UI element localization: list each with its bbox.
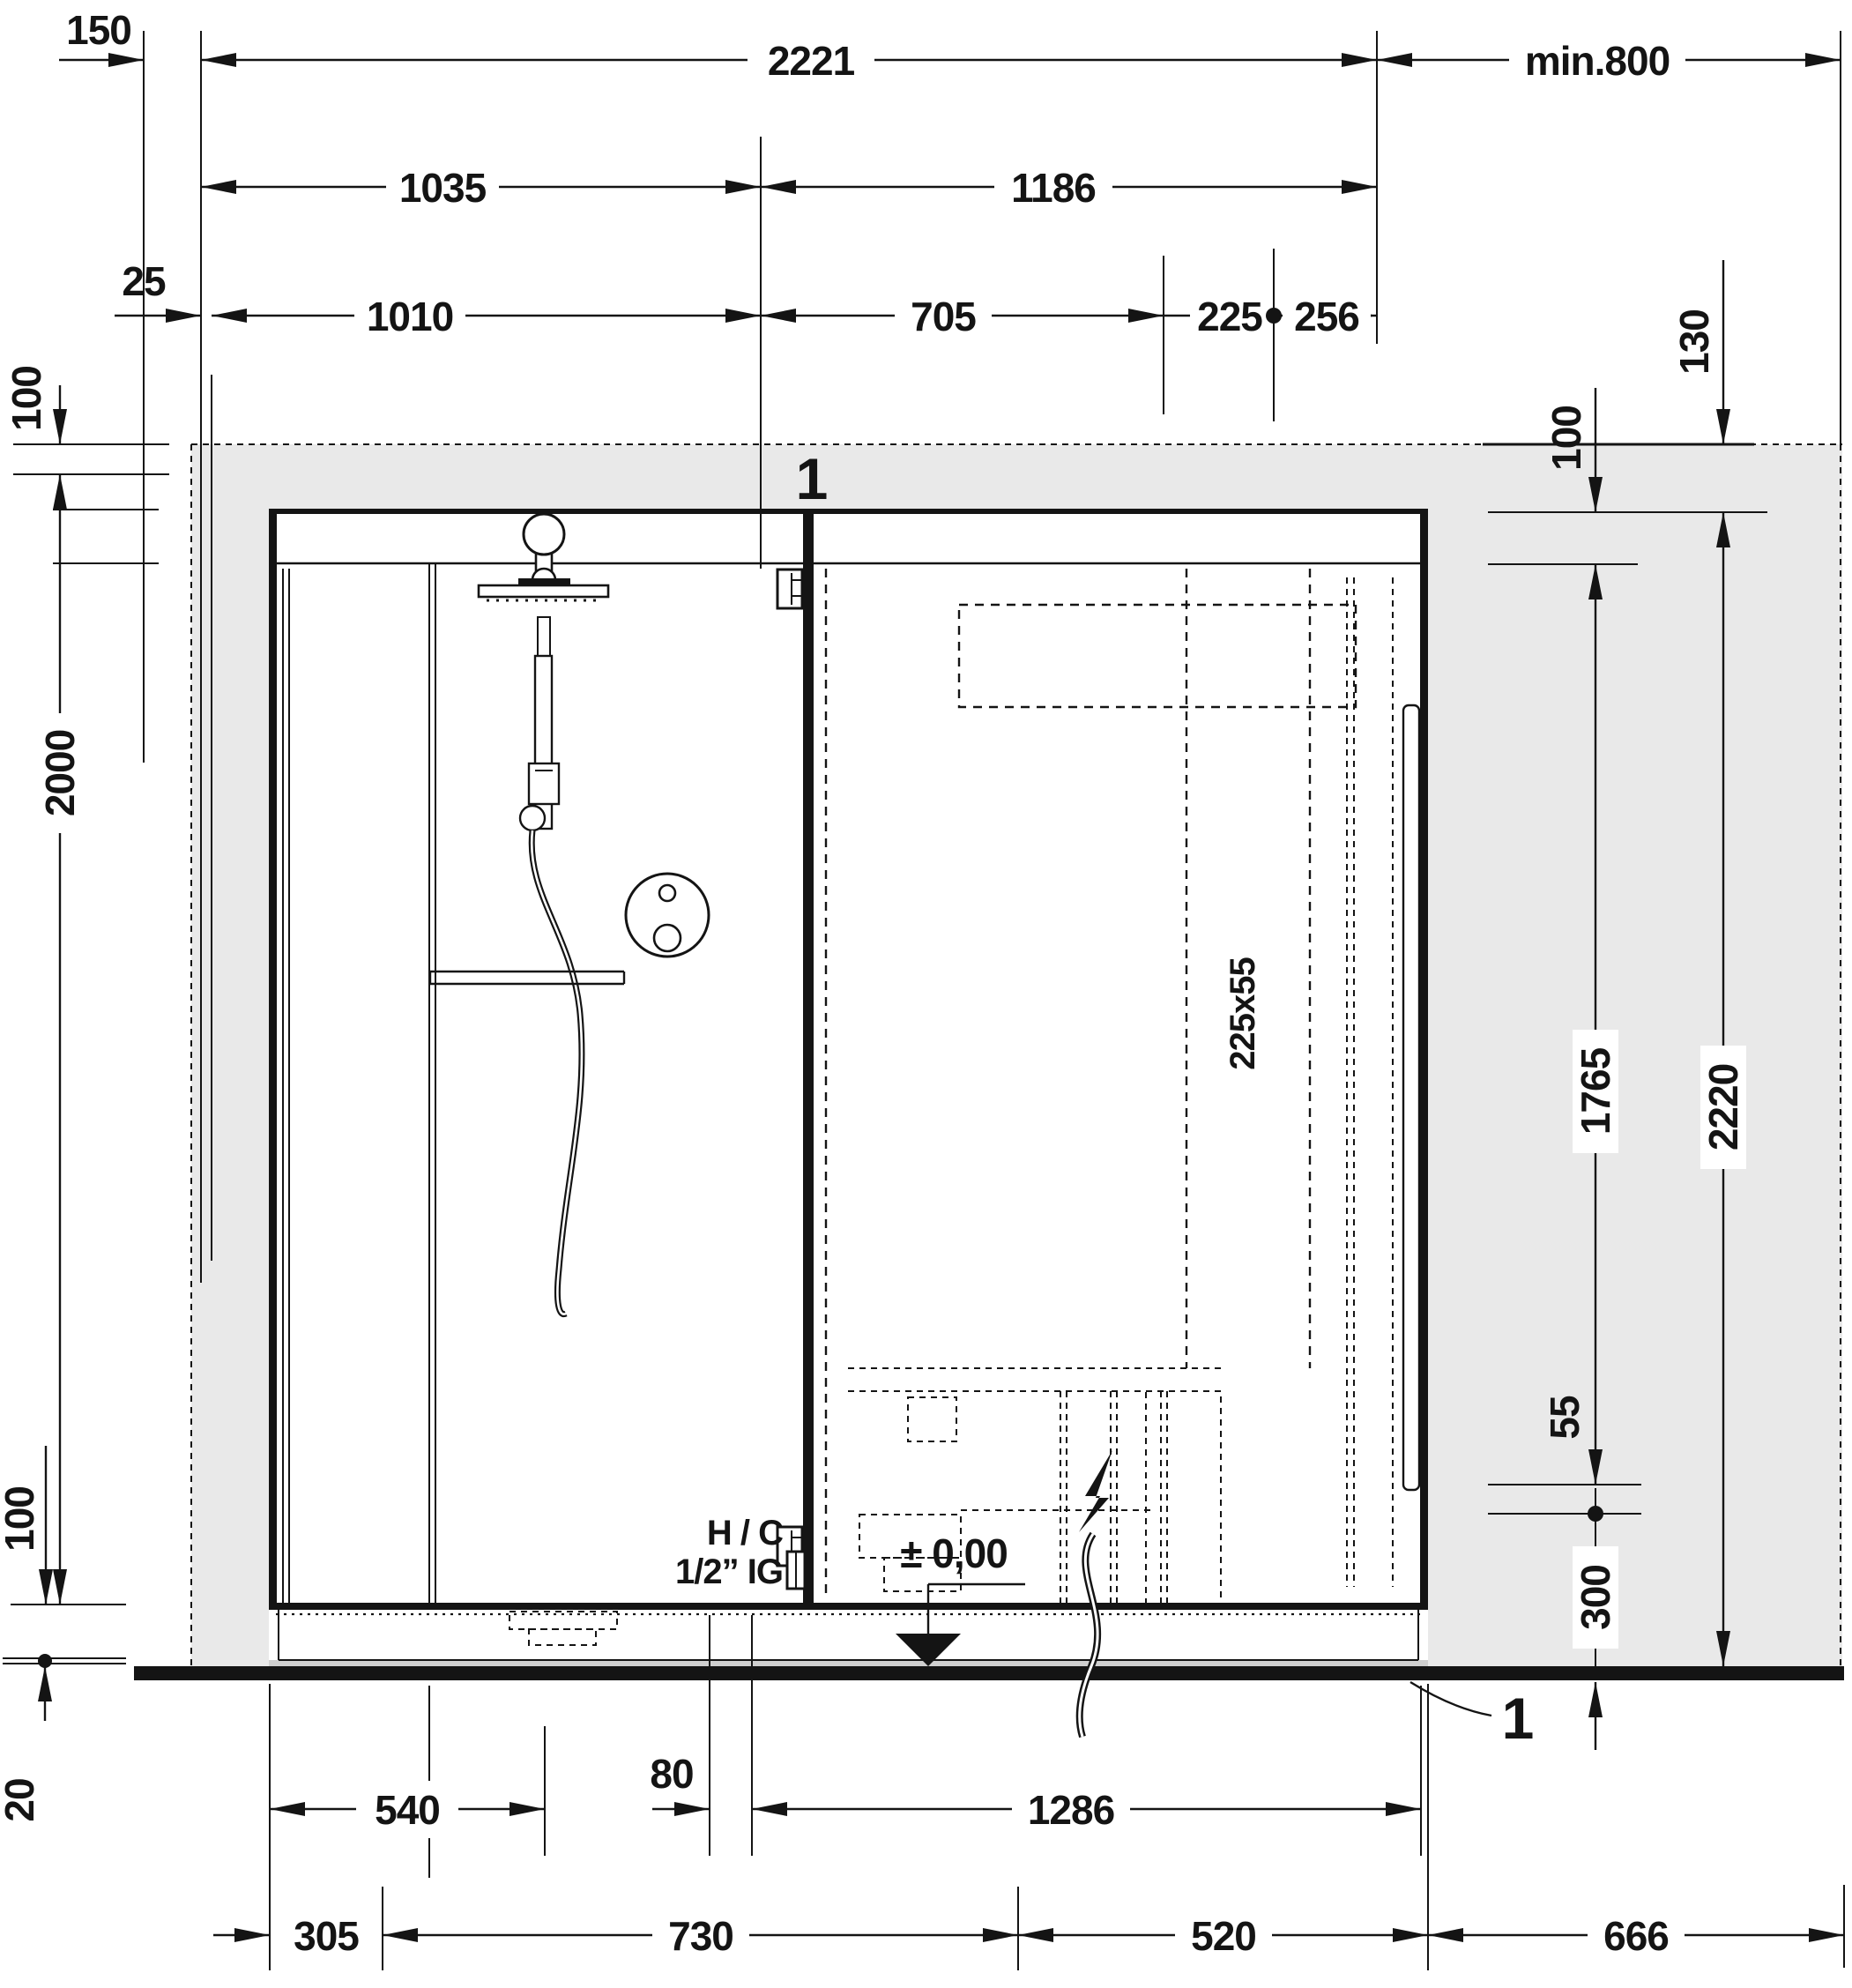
dim-2221-label: 2221 bbox=[768, 38, 855, 84]
level-marker-icon: ± 0,00 bbox=[896, 1530, 1025, 1666]
dim-right-130: 130 bbox=[1671, 260, 1723, 444]
dim-20-label: 20 bbox=[0, 1778, 42, 1821]
dim-2000-label: 2000 bbox=[37, 730, 83, 816]
cabin-left-wall bbox=[269, 510, 277, 1610]
wall-column-bar bbox=[1403, 705, 1419, 1490]
dim-drain-540: 540 bbox=[270, 1786, 545, 1833]
dim-connection-gap-80: 80 bbox=[650, 1751, 710, 1809]
duct-size-text: 225x55 bbox=[1224, 957, 1262, 1070]
drain-outline bbox=[509, 1612, 617, 1645]
dim-seg-730: 730 bbox=[383, 1912, 1018, 1959]
floor-sliver bbox=[269, 1660, 1428, 1666]
dim-seg-666: 666 bbox=[1428, 1912, 1844, 1959]
dim-wall-left-150: 150 bbox=[59, 7, 144, 60]
cabin-frame bbox=[269, 510, 1428, 1660]
dim-gap-25: 25 bbox=[115, 258, 201, 316]
dim-connection-705: 705 bbox=[761, 293, 1164, 339]
dim-520-label: 520 bbox=[1191, 1913, 1256, 1959]
dim-floor-gap-20: 20 bbox=[0, 1654, 52, 1822]
dim-clearance-min800: min.800 bbox=[1377, 37, 1841, 84]
dim-left-100-bottom-label: 100 bbox=[0, 1486, 42, 1552]
dim-right-100-label: 100 bbox=[1543, 406, 1589, 471]
dim-1010-label: 1010 bbox=[367, 294, 453, 339]
floor-slab bbox=[134, 1666, 1844, 1680]
dim-left-100-top: 100 bbox=[4, 366, 60, 444]
dim-55-label: 55 bbox=[1542, 1396, 1588, 1440]
dim-150-label: 150 bbox=[66, 7, 131, 53]
center-divider bbox=[803, 510, 814, 1610]
dim-256-label: 256 bbox=[1294, 294, 1359, 339]
dim-left-100-top-label: 100 bbox=[4, 366, 49, 431]
dim-225-label: 225 bbox=[1197, 294, 1262, 339]
dim-seg-520: 520 bbox=[1018, 1912, 1428, 1959]
level-text: ± 0,00 bbox=[900, 1530, 1008, 1576]
dim-overall-width-2221: 2221 bbox=[201, 37, 1377, 84]
shower-shelf bbox=[430, 972, 624, 984]
dim-1186-label: 1186 bbox=[1011, 165, 1096, 211]
top-frame-band bbox=[269, 510, 1428, 563]
dim-shower-width-1035: 1035 bbox=[201, 164, 761, 211]
gap-point-dot bbox=[38, 1654, 52, 1668]
dim-connection-1010: 1010 bbox=[212, 293, 761, 339]
dim-1035-label: 1035 bbox=[399, 165, 487, 211]
dim-540-label: 540 bbox=[375, 1787, 440, 1833]
dim-1765-label: 1765 bbox=[1573, 1047, 1618, 1135]
shower-slide-bar bbox=[529, 617, 559, 829]
door-hinge-top bbox=[777, 570, 802, 608]
technical-drawing-page: 225x55 ± 0,00 H / C 1/2” IG 1 1 bbox=[0, 0, 1852, 1988]
dim-666-label: 666 bbox=[1603, 1913, 1669, 1959]
dim-glass-height-2000: 2000 bbox=[37, 474, 83, 1605]
installation-diagram: 225x55 ± 0,00 H / C 1/2” IG 1 1 bbox=[0, 0, 1852, 1988]
dim-130-label: 130 bbox=[1671, 309, 1717, 375]
section-marker-bottom-text: 1 bbox=[1502, 1686, 1535, 1751]
dim-left-100-bottom: 100 bbox=[0, 1446, 46, 1605]
section-marker-bottom: 1 bbox=[1410, 1682, 1534, 1751]
dim-duct-256: 256 bbox=[1274, 294, 1377, 339]
dim-1286-label: 1286 bbox=[1028, 1787, 1114, 1833]
dim-duct-225: 225 bbox=[1164, 294, 1282, 339]
hand-shower-icon bbox=[520, 806, 582, 1314]
sauna-interior: 225x55 bbox=[848, 569, 1419, 1606]
dim-300-label: 300 bbox=[1573, 1565, 1618, 1630]
dim-705-label: 705 bbox=[911, 294, 976, 339]
dim-seg-305: 305 bbox=[213, 1913, 359, 1959]
dim-25-label: 25 bbox=[122, 258, 166, 304]
right-wall-paneling bbox=[1347, 577, 1419, 1587]
dim-305-label: 305 bbox=[294, 1913, 359, 1959]
dim-min800-label: min.800 bbox=[1525, 38, 1670, 84]
section-marker-top: 1 bbox=[796, 446, 829, 511]
dim-2220-label: 2220 bbox=[1700, 1064, 1746, 1150]
lightning-bolt-icon bbox=[1079, 1450, 1112, 1532]
dim-730-label: 730 bbox=[668, 1913, 733, 1959]
dim-80-label: 80 bbox=[650, 1751, 693, 1797]
cabin-right-wall bbox=[1420, 510, 1428, 1610]
power-cable bbox=[1080, 1534, 1097, 1737]
dim-sauna-base-1286: 1286 bbox=[752, 1786, 1421, 1833]
socket-point-dot bbox=[1588, 1506, 1603, 1522]
mixer-valve-icon bbox=[626, 874, 709, 957]
bench-back-outline bbox=[959, 605, 1356, 707]
water-label-line2: 1/2” IG bbox=[675, 1552, 783, 1591]
shower-hose bbox=[532, 830, 582, 1314]
duct-size-label: 225x55 bbox=[1224, 957, 1262, 1070]
cabin-bottom-frame bbox=[269, 1603, 1428, 1610]
dim-sauna-width-1186: 1186 bbox=[761, 164, 1377, 211]
water-label-line1: H / C bbox=[707, 1514, 783, 1552]
